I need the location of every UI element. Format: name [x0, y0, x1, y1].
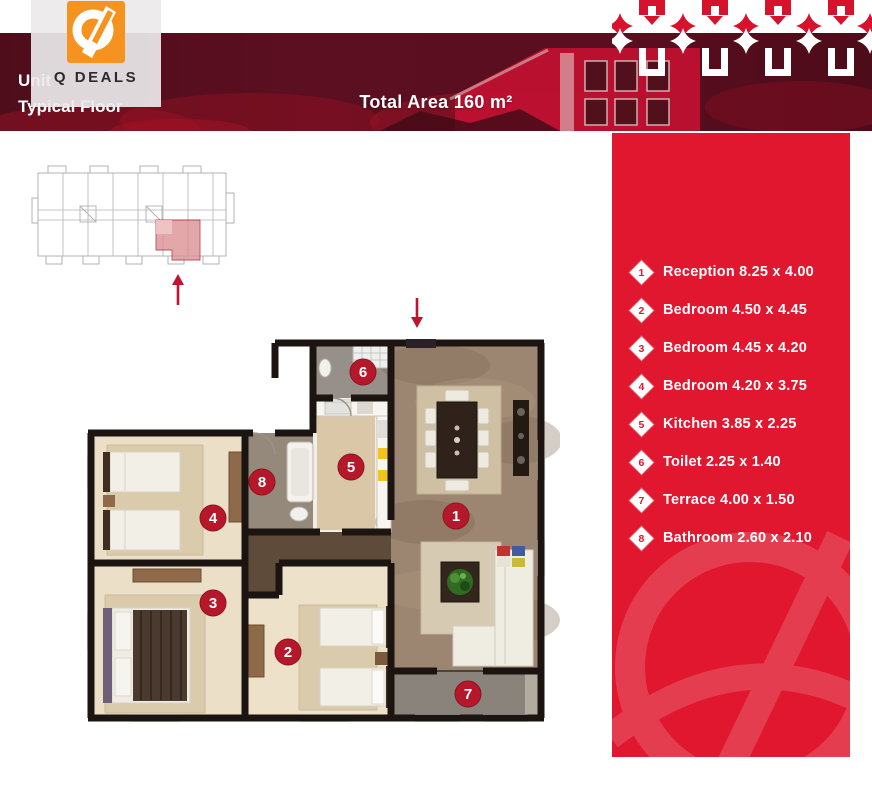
badge-bedroom2: 2 — [275, 639, 301, 665]
tv-console — [513, 400, 529, 476]
room-item-terrace: 7 Terrace 4.00 x 1.50 — [633, 481, 850, 519]
diamond-bullet: 1 — [629, 260, 653, 284]
badge-reception: 1 — [443, 503, 469, 529]
bathtub — [287, 442, 313, 502]
svg-text:7: 7 — [464, 686, 472, 703]
diamond-bullet: 4 — [629, 374, 653, 398]
diamond-bullet: 7 — [629, 488, 653, 512]
badge-toilet: 6 — [350, 359, 376, 385]
diamond-bullet: 2 — [629, 298, 653, 322]
room-list: 1 Reception 8.25 x 4.00 2 Bedroom 4.50 x… — [612, 133, 850, 557]
qdeals-logo-card: Q DEALS — [31, 0, 161, 107]
entrance-arrow-down — [411, 298, 423, 328]
svg-text:5: 5 — [347, 459, 355, 476]
entrance-door — [406, 339, 436, 348]
bathroom-sink — [290, 507, 308, 521]
badge-terrace: 7 — [455, 681, 481, 707]
diamond-bullet: 3 — [629, 336, 653, 360]
svg-text:1: 1 — [452, 508, 460, 525]
room-item-bedroom4: 4 Bedroom 4.20 x 3.75 — [633, 367, 850, 405]
room-item-reception: 1 Reception 8.25 x 4.00 — [633, 253, 850, 291]
badge-bedroom3: 3 — [200, 590, 226, 616]
bedroom4-wardrobe — [229, 452, 243, 522]
brand-name: Q DEALS — [54, 69, 138, 86]
diamond-bullet: 8 — [629, 526, 653, 550]
room-legend-sidebar: 1 Reception 8.25 x 4.00 2 Bedroom 4.50 x… — [612, 133, 850, 757]
badge-bathroom: 8 — [249, 469, 275, 495]
bedroom3-dresser — [133, 569, 201, 582]
light-shaft — [275, 343, 313, 433]
flyer-page: Total Area 160 m² Unit Typical Floor Q D… — [0, 0, 872, 787]
bedroom2-dresser — [247, 625, 264, 677]
building-key-plan — [28, 158, 238, 308]
room-item-bathroom: 8 Bathroom 2.60 x 2.10 — [633, 519, 850, 557]
islamic-ornament-pattern — [612, 0, 872, 80]
svg-text:3: 3 — [209, 595, 217, 612]
room-item-toilet: 6 Toilet 2.25 x 1.40 — [633, 443, 850, 481]
svg-text:4: 4 — [209, 510, 218, 527]
diamond-bullet: 6 — [629, 450, 653, 474]
room-item-bedroom3: 3 Bedroom 4.45 x 4.20 — [633, 329, 850, 367]
svg-text:2: 2 — [284, 644, 292, 661]
bedroom3-bed — [103, 608, 190, 703]
diamond-bullet: 5 — [629, 412, 653, 436]
wc — [319, 359, 331, 377]
qdeals-logo-icon — [66, 0, 126, 66]
svg-text:8: 8 — [258, 474, 266, 491]
badge-kitchen: 5 — [338, 454, 364, 480]
coffee-table — [441, 562, 479, 602]
badge-bedroom4: 4 — [200, 505, 226, 531]
room-item-bedroom2: 2 Bedroom 4.50 x 4.45 — [633, 291, 850, 329]
room-item-kitchen: 5 Kitchen 3.85 x 2.25 — [633, 405, 850, 443]
svg-text:6: 6 — [359, 364, 367, 381]
apartment-floor-plan: 1 2 3 4 5 6 7 — [85, 290, 560, 732]
